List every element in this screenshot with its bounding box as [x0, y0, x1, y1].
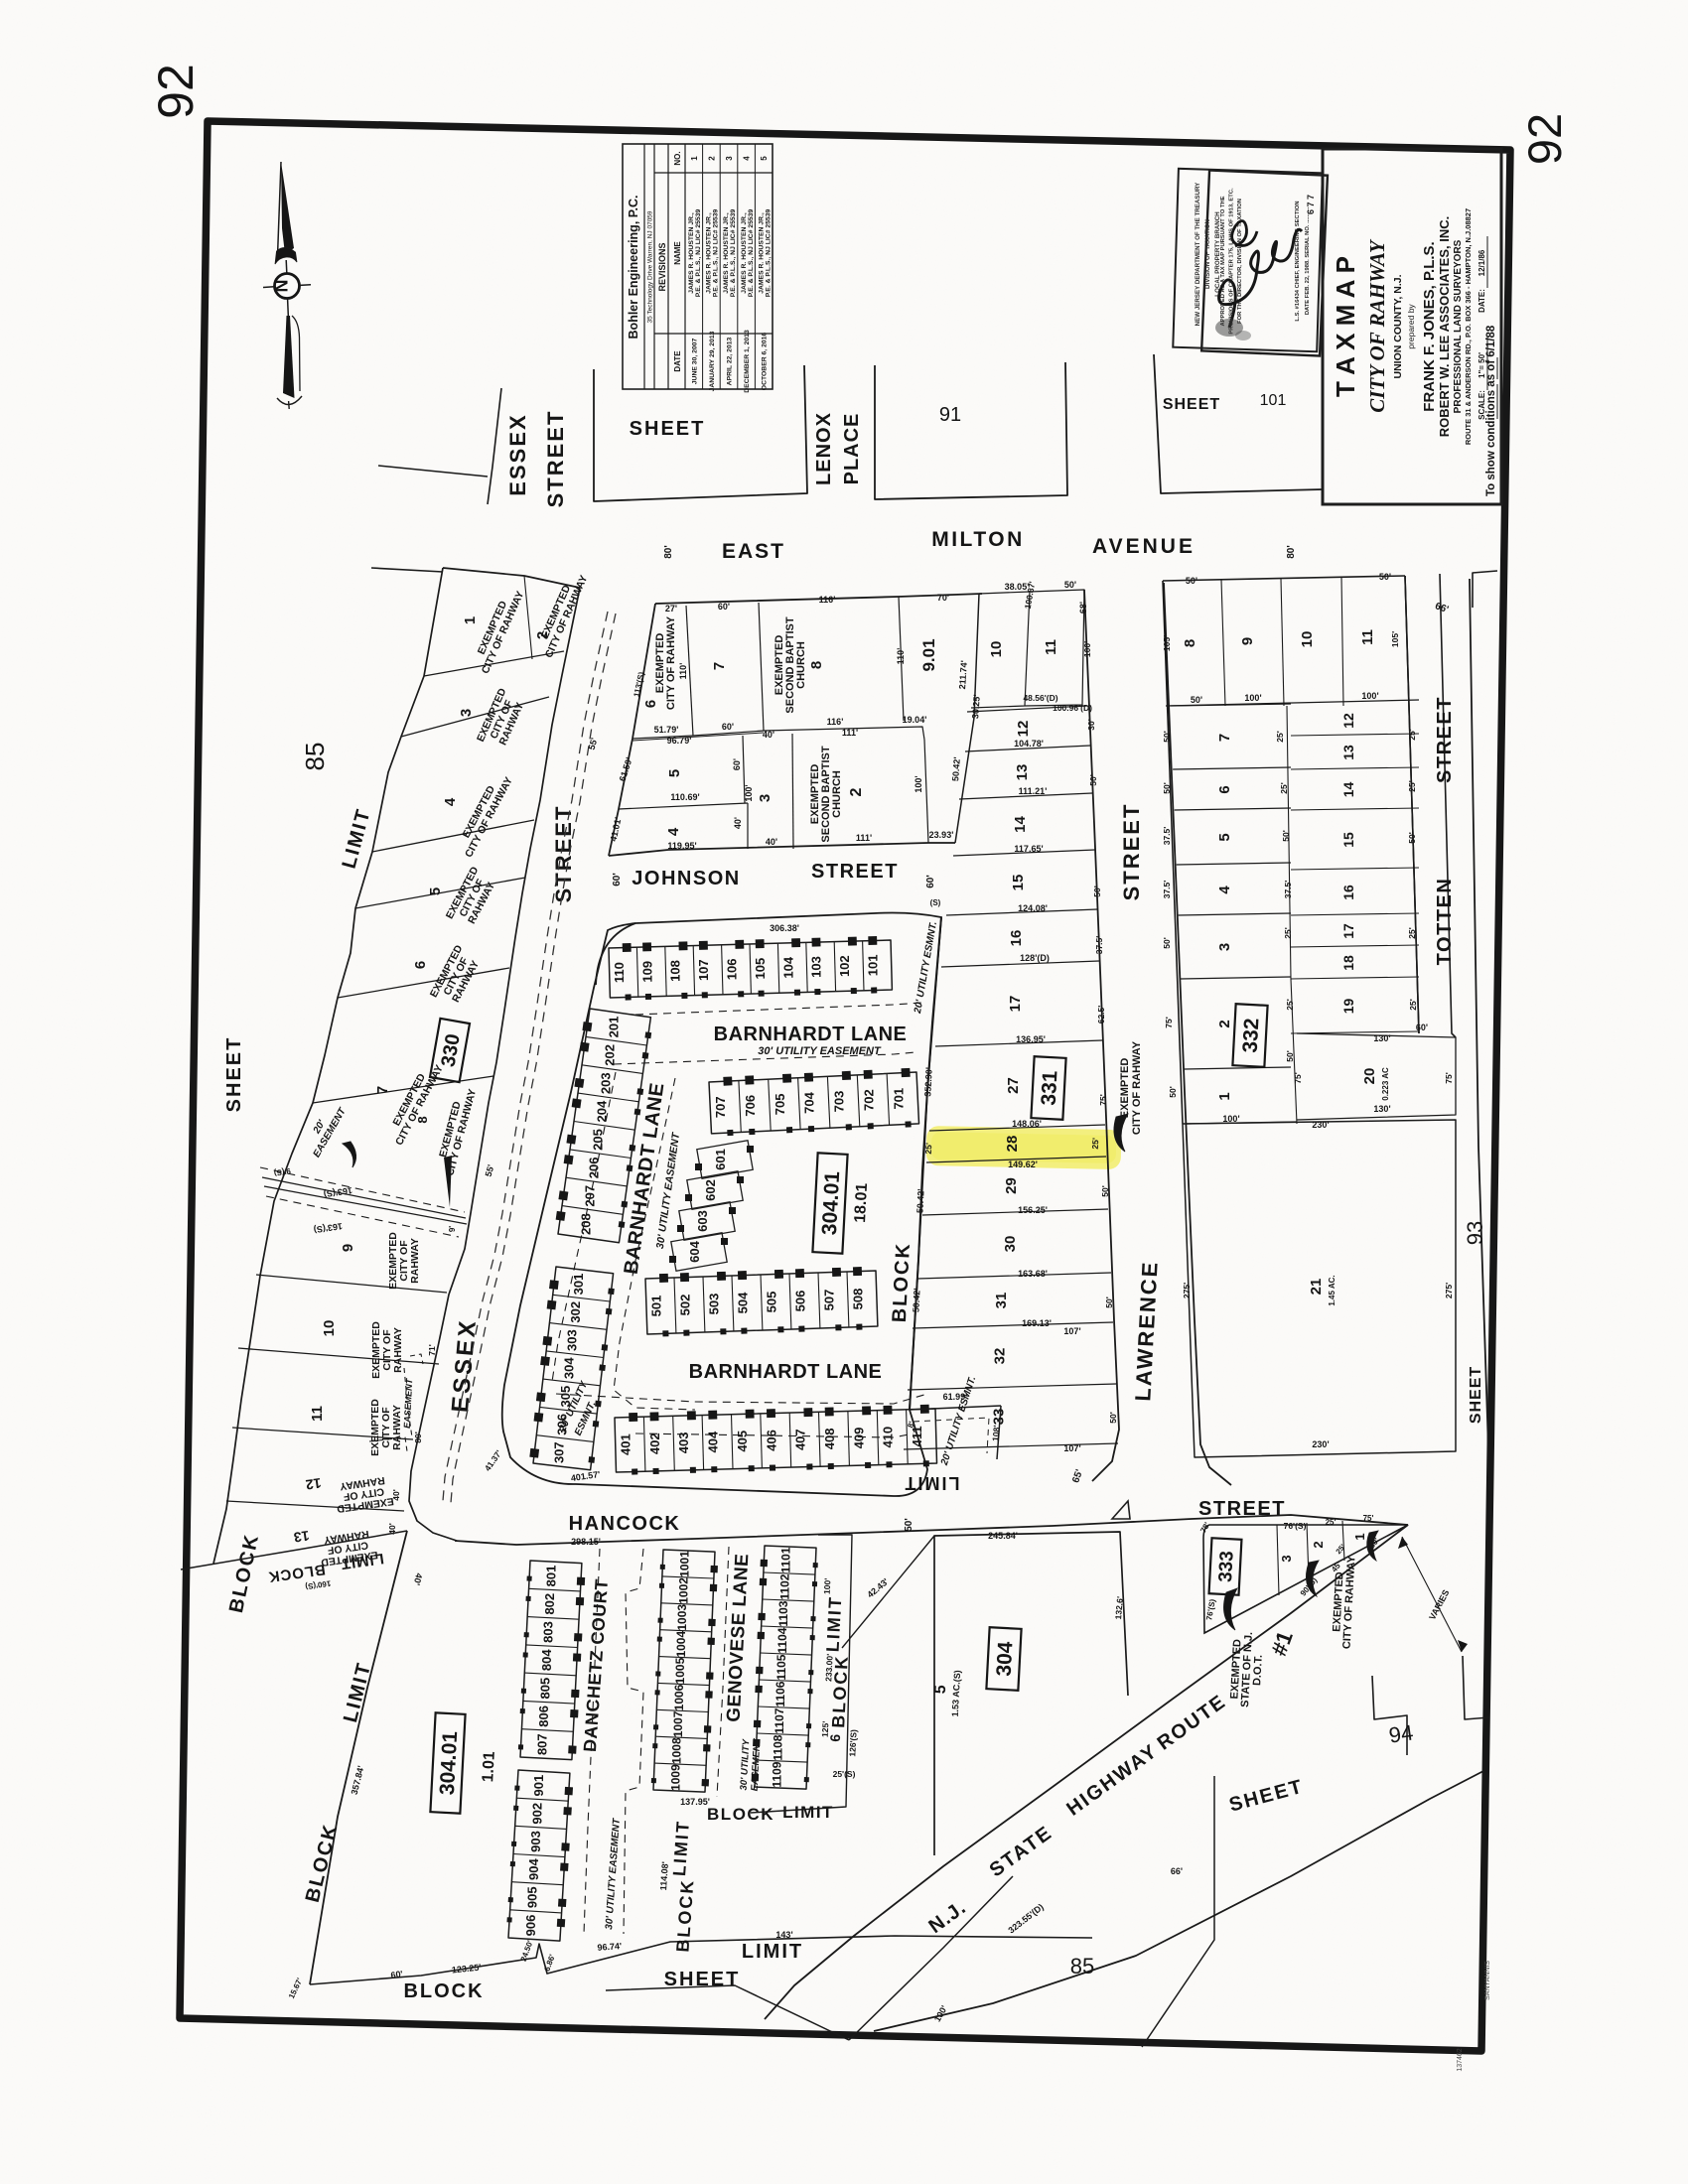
- svg-text:704: 704: [802, 1091, 817, 1113]
- svg-text:0.223 AC: 0.223 AC: [1381, 1067, 1390, 1101]
- svg-text:LENOX: LENOX: [813, 412, 835, 485]
- svg-text:50': 50': [904, 1518, 914, 1532]
- svg-text:603: 603: [695, 1210, 710, 1232]
- svg-text:1108: 1108: [772, 1734, 785, 1760]
- svg-text:410: 410: [881, 1427, 896, 1448]
- svg-text:15: 15: [1010, 875, 1027, 891]
- svg-text:75': 75': [1444, 1072, 1454, 1083]
- svg-text:CITY OF RAHWAY: CITY OF RAHWAY: [1365, 238, 1389, 413]
- svg-text:100': 100': [822, 1577, 833, 1594]
- svg-text:71': 71': [427, 1344, 437, 1355]
- svg-text:10: 10: [1299, 631, 1316, 648]
- svg-text:404: 404: [706, 1431, 721, 1452]
- svg-text:50': 50': [1379, 572, 1391, 582]
- svg-text:233.00': 233.00': [823, 1654, 834, 1683]
- svg-text:333: 333: [1215, 1551, 1238, 1583]
- svg-text:6: 6: [412, 961, 429, 969]
- svg-text:12: 12: [305, 1475, 323, 1493]
- svg-text:RAHWAY: RAHWAY: [392, 1327, 404, 1373]
- svg-text:P.E. & P.L.S., NJ LIC# 25539: P.E. & P.L.S., NJ LIC# 25539: [730, 209, 737, 298]
- svg-text:202: 202: [603, 1044, 618, 1066]
- svg-text:1103: 1103: [776, 1600, 790, 1626]
- svg-text:11: 11: [1359, 629, 1376, 645]
- svg-text:1: 1: [1216, 1092, 1233, 1100]
- svg-text:SHEET: SHEET: [223, 1036, 245, 1113]
- svg-text:2: 2: [707, 156, 716, 161]
- svg-text:505: 505: [765, 1292, 779, 1313]
- svg-text:25': 25': [1407, 729, 1417, 740]
- svg-text:2: 2: [1216, 1020, 1233, 1027]
- svg-text:48.56'(D): 48.56'(D): [1023, 693, 1057, 703]
- svg-text:408: 408: [822, 1429, 837, 1450]
- svg-text:50': 50': [1285, 1050, 1295, 1061]
- svg-text:100': 100': [1361, 691, 1378, 701]
- svg-text:ROUTE 31 & ANDERSON RD., P.O.: ROUTE 31 & ANDERSON RD., P.O. BOX 366 - …: [1464, 208, 1473, 445]
- svg-text:37.5': 37.5': [1283, 881, 1293, 899]
- svg-text:203: 203: [599, 1072, 614, 1094]
- svg-text:51.79': 51.79': [654, 725, 679, 735]
- svg-text:107': 107': [1063, 1443, 1080, 1453]
- svg-text:701: 701: [891, 1088, 906, 1110]
- svg-text:DECEMBER 1, 2013: DECEMBER 1, 2013: [744, 330, 751, 393]
- svg-text:60': 60': [732, 758, 742, 770]
- svg-text:LIMIT: LIMIT: [669, 1819, 693, 1876]
- svg-text:STREET: STREET: [811, 861, 899, 883]
- svg-text:50': 50': [1162, 731, 1172, 742]
- svg-text:143': 143': [775, 1930, 792, 1940]
- svg-text:163.68': 163.68': [1018, 1269, 1048, 1279]
- svg-text:5: 5: [666, 769, 683, 777]
- svg-text:50': 50': [1162, 782, 1172, 793]
- svg-text:BLOCK: BLOCK: [403, 1980, 484, 2002]
- svg-text:14: 14: [1012, 816, 1029, 833]
- svg-text:304: 304: [993, 1641, 1018, 1678]
- svg-text:1: 1: [690, 156, 699, 161]
- svg-text:101: 101: [866, 955, 881, 977]
- svg-text:1.45 AC.: 1.45 AC.: [1328, 1275, 1336, 1305]
- svg-text:805: 805: [538, 1678, 553, 1700]
- svg-text:93: 93: [1463, 1221, 1487, 1245]
- svg-text:604: 604: [687, 1240, 702, 1262]
- svg-text:60': 60': [390, 1969, 403, 1980]
- svg-text:101: 101: [1260, 392, 1287, 409]
- svg-text:25': 25': [1326, 1518, 1336, 1527]
- svg-text:1.01: 1.01: [480, 1751, 498, 1783]
- svg-text:BLOCK: BLOCK: [889, 1242, 914, 1323]
- svg-text:92: 92: [1518, 113, 1571, 165]
- svg-text:126'(S): 126'(S): [847, 1729, 858, 1757]
- svg-text:21: 21: [1308, 1279, 1325, 1296]
- svg-text:25': 25': [1090, 1138, 1101, 1150]
- svg-text:SHEET: SHEET: [630, 418, 706, 440]
- svg-text:130': 130': [1373, 1104, 1390, 1114]
- svg-text:125': 125': [820, 1720, 831, 1737]
- svg-text:ESSEX: ESSEX: [505, 413, 530, 495]
- svg-text:25': 25': [1408, 999, 1418, 1010]
- svg-text:EAST: EAST: [722, 540, 785, 563]
- svg-text:50': 50': [1168, 1086, 1178, 1097]
- svg-text:705: 705: [773, 1094, 787, 1116]
- svg-text:405: 405: [735, 1431, 750, 1452]
- svg-text:304: 304: [561, 1357, 576, 1379]
- svg-text:801: 801: [543, 1566, 558, 1587]
- svg-text:(S): (S): [930, 898, 941, 907]
- svg-text:85: 85: [300, 743, 330, 771]
- svg-text:76'(S): 76'(S): [1284, 1521, 1307, 1531]
- svg-text:40': 40': [766, 837, 777, 847]
- svg-text:P.E. & P.L.S., NJ LIC# 25539: P.E. & P.L.S., NJ LIC# 25539: [695, 209, 702, 298]
- svg-text:506: 506: [793, 1291, 808, 1312]
- svg-text:401: 401: [618, 1433, 633, 1455]
- svg-text:Bohler Engineering, P.C.: Bohler Engineering, P.C.: [627, 196, 640, 340]
- svg-text:LIMIT: LIMIT: [904, 1473, 960, 1493]
- svg-text:407: 407: [793, 1429, 808, 1450]
- svg-text:102: 102: [837, 955, 852, 977]
- svg-text:27': 27': [665, 604, 677, 614]
- svg-text:107': 107': [1063, 1326, 1080, 1336]
- svg-text:1003: 1003: [675, 1604, 689, 1631]
- svg-text:4: 4: [743, 156, 752, 161]
- svg-text:RAHWAY: RAHWAY: [409, 1238, 421, 1284]
- svg-text:37.5': 37.5': [1162, 827, 1172, 846]
- svg-text:75': 75': [1293, 1072, 1303, 1083]
- svg-text:5: 5: [932, 1685, 949, 1695]
- svg-text:302: 302: [568, 1301, 583, 1323]
- svg-text:30: 30: [1002, 1236, 1019, 1253]
- svg-text:3: 3: [1216, 943, 1233, 951]
- svg-text:UNION COUNTY, N.J.: UNION COUNTY, N.J.: [1392, 274, 1404, 378]
- svg-text:19: 19: [1340, 999, 1356, 1015]
- svg-text:275': 275': [1444, 1283, 1454, 1298]
- svg-text:50.42': 50.42': [950, 756, 962, 781]
- svg-text:80': 80': [663, 545, 674, 559]
- svg-text:50': 50': [1407, 832, 1417, 843]
- svg-text:501: 501: [649, 1296, 664, 1317]
- svg-text:108': 108': [990, 1425, 1001, 1441]
- svg-text:298.15': 298.15': [571, 1537, 601, 1547]
- svg-text:17: 17: [1340, 923, 1356, 939]
- svg-text:137462: 137462: [1457, 2048, 1464, 2071]
- svg-text:HANCOCK: HANCOCK: [569, 1513, 681, 1535]
- svg-text:6: 6: [1216, 785, 1233, 793]
- svg-text:802: 802: [542, 1593, 557, 1615]
- svg-text:204: 204: [595, 1100, 610, 1122]
- svg-text:29: 29: [1003, 1177, 1020, 1194]
- svg-text:8: 8: [808, 661, 825, 669]
- svg-text:60': 60': [1416, 1023, 1428, 1032]
- svg-text:PROFESSIONAL LAND SURVEYOR: PROFESSIONAL LAND SURVEYORS: [1453, 239, 1464, 413]
- svg-text:2: 2: [1311, 1541, 1326, 1548]
- svg-text:1107: 1107: [773, 1707, 786, 1733]
- svg-text:SANYANNIS: SANYANNIS: [1484, 1961, 1491, 2000]
- svg-text:STREET: STREET: [543, 410, 568, 508]
- svg-text:25'(S): 25'(S): [833, 1769, 856, 1779]
- svg-text:117.65': 117.65': [1014, 844, 1043, 854]
- svg-text:116': 116': [827, 717, 844, 727]
- svg-text:8: 8: [1182, 639, 1198, 647]
- svg-text:9': 9': [448, 1226, 457, 1232]
- svg-text:807: 807: [535, 1733, 550, 1755]
- svg-text:FOR THE DIRECTOR, DIVISION OF: FOR THE DIRECTOR, DIVISION OF TAXATION: [1237, 199, 1243, 324]
- svg-text:JAMES R. HOUSTEN JR.,: JAMES R. HOUSTEN JR.,: [706, 212, 713, 294]
- svg-text:105': 105': [1390, 631, 1400, 647]
- svg-text:40': 40': [763, 730, 774, 740]
- svg-text:208: 208: [579, 1213, 594, 1235]
- svg-text:JAMES R. HOUSTEN JR.,: JAMES R. HOUSTEN JR.,: [688, 212, 695, 294]
- svg-text:68': 68': [1078, 602, 1088, 614]
- svg-text:906: 906: [523, 1915, 538, 1937]
- svg-text:50': 50': [1162, 937, 1172, 948]
- svg-text:3: 3: [458, 709, 475, 717]
- svg-text:303: 303: [565, 1329, 580, 1351]
- svg-text:100': 100': [1222, 1114, 1239, 1124]
- svg-text:FRANK F. JONES, P.L.S.: FRANK F. JONES, P.L.S.: [1421, 241, 1438, 411]
- svg-text:75': 75': [1098, 1094, 1108, 1105]
- svg-text:50': 50': [1281, 830, 1291, 841]
- svg-text:156.25': 156.25': [1018, 1205, 1048, 1215]
- svg-text:DATE FEB. 22, 1988. SERIAL N: DATE FEB. 22, 1988. SERIAL NO. .........…: [1305, 206, 1311, 315]
- svg-text:JOHNSON: JOHNSON: [632, 868, 740, 889]
- svg-text:CHURCH: CHURCH: [831, 770, 843, 818]
- svg-text:304.01: 304.01: [436, 1730, 462, 1796]
- svg-text:6 7 7: 6 7 7: [1306, 195, 1316, 214]
- svg-text:1101: 1101: [778, 1547, 792, 1572]
- svg-text:TOTTEN: TOTTEN: [1434, 878, 1456, 966]
- svg-text:206: 206: [587, 1158, 602, 1179]
- svg-text:32: 32: [992, 1348, 1009, 1365]
- svg-text:602: 602: [703, 1179, 718, 1201]
- svg-text:CITY OF RAHWAY: CITY OF RAHWAY: [1131, 1040, 1143, 1135]
- svg-text:12: 12: [1015, 721, 1032, 738]
- svg-text:3: 3: [725, 156, 734, 161]
- svg-text:124.08': 124.08': [1018, 903, 1048, 913]
- svg-text:96.79': 96.79': [667, 736, 692, 746]
- svg-text:4: 4: [1216, 886, 1233, 894]
- svg-text:148.06': 148.06': [1012, 1119, 1042, 1129]
- svg-text:14: 14: [1340, 782, 1356, 798]
- svg-text:92: 92: [148, 64, 204, 119]
- svg-text:50': 50': [1108, 1412, 1118, 1423]
- svg-text:85: 85: [1070, 1954, 1094, 1979]
- svg-text:25': 25': [1275, 731, 1285, 742]
- svg-text:902: 902: [530, 1803, 545, 1825]
- svg-text:7: 7: [1216, 734, 1233, 742]
- svg-text:11: 11: [1043, 639, 1059, 655]
- svg-text:306.38': 306.38': [770, 923, 799, 933]
- svg-text:11: 11: [309, 1406, 326, 1422]
- svg-text:JAMES R. HOUSTEN JR.,: JAMES R. HOUSTEN JR.,: [741, 212, 748, 294]
- svg-text:10: 10: [988, 641, 1005, 658]
- svg-text:331: 331: [1038, 1070, 1062, 1107]
- svg-text:15: 15: [1340, 832, 1356, 848]
- svg-text:JANUARY 29, 2013: JANUARY 29, 2013: [709, 331, 716, 391]
- svg-text:6: 6: [642, 700, 659, 708]
- svg-text:601: 601: [713, 1149, 728, 1170]
- svg-text:104.78': 104.78': [1014, 739, 1044, 749]
- svg-text:110': 110': [678, 663, 688, 680]
- svg-text:DATE: DATE: [673, 350, 682, 372]
- svg-text:2: 2: [848, 787, 865, 796]
- svg-text:508: 508: [851, 1289, 866, 1310]
- svg-text:JUNE 30, 2007: JUNE 30, 2007: [691, 339, 698, 385]
- svg-text:903: 903: [528, 1831, 543, 1852]
- svg-text:230': 230': [1312, 1439, 1329, 1449]
- svg-text:DIVISION OF TAXATION: DIVISION OF TAXATION: [1204, 219, 1211, 289]
- svg-text:SHEET: SHEET: [1163, 396, 1220, 413]
- svg-text:116': 116': [819, 595, 836, 605]
- svg-text:905: 905: [525, 1886, 540, 1908]
- svg-text:23.93': 23.93': [929, 830, 954, 840]
- svg-text:60': 60': [718, 602, 730, 612]
- svg-text:STREET: STREET: [1198, 1498, 1286, 1520]
- svg-text:70': 70': [937, 593, 949, 603]
- svg-text:P.E. & P.L.S., NJ LIC# 25539: P.E. & P.L.S., NJ LIC# 25539: [713, 209, 720, 298]
- svg-text:25': 25': [1279, 782, 1289, 793]
- svg-text:3: 3: [757, 794, 774, 802]
- svg-text:80': 80': [1286, 545, 1297, 559]
- svg-text:BLOCK: BLOCK: [707, 1805, 774, 1824]
- svg-text:18: 18: [1340, 955, 1356, 971]
- svg-text:1001: 1001: [677, 1551, 691, 1577]
- svg-text:To show conditions as of 6/1/: To show conditions as of 6/1/88: [1485, 325, 1497, 496]
- svg-text:100': 100': [744, 784, 754, 801]
- svg-text:211.74': 211.74': [957, 660, 969, 690]
- svg-text:403: 403: [676, 1433, 691, 1454]
- svg-text:75': 75': [1164, 1017, 1174, 1027]
- svg-text:111.21': 111.21': [1019, 786, 1048, 796]
- svg-text:803: 803: [540, 1621, 555, 1643]
- svg-text:BARNHARDT LANE: BARNHARDT LANE: [714, 1024, 908, 1045]
- svg-text:50': 50': [1186, 576, 1197, 586]
- svg-text:169.13': 169.13': [1022, 1318, 1052, 1328]
- svg-text:307: 307: [551, 1441, 566, 1463]
- svg-text:3: 3: [1279, 1555, 1294, 1562]
- svg-text:9.01: 9.01: [919, 638, 938, 671]
- svg-text:REVISIONS: REVISIONS: [657, 242, 667, 291]
- svg-text:1006: 1006: [672, 1684, 686, 1710]
- svg-text:502: 502: [678, 1295, 693, 1316]
- svg-text:40': 40': [391, 1489, 401, 1500]
- svg-text:105': 105': [1162, 635, 1172, 651]
- svg-text:18.01: 18.01: [852, 1182, 871, 1223]
- svg-text:149.62': 149.62': [1008, 1160, 1038, 1169]
- svg-text:1005: 1005: [673, 1657, 687, 1684]
- svg-text:304.01: 304.01: [818, 1170, 844, 1236]
- svg-text:L.S. #16434 CHIEF, EN: L.S. #16434 CHIEF, ENGINEERING SECTION: [1295, 201, 1301, 321]
- svg-text:105: 105: [753, 958, 768, 980]
- svg-text:4: 4: [665, 827, 682, 836]
- svg-text:7: 7: [374, 1086, 391, 1094]
- svg-text:16: 16: [1008, 930, 1025, 947]
- svg-text:507: 507: [822, 1290, 837, 1311]
- svg-text:106: 106: [725, 959, 740, 981]
- svg-text:301: 301: [571, 1274, 586, 1296]
- svg-text:30' UTILITY EASEMENT: 30' UTILITY EASEMENT: [758, 1045, 882, 1057]
- svg-text:66': 66': [1171, 1866, 1183, 1876]
- svg-text:LIMIT: LIMIT: [823, 1595, 846, 1653]
- svg-text:110': 110': [896, 648, 906, 665]
- svg-text:75': 75': [1363, 1514, 1374, 1523]
- svg-text:35 Technology Drive Warren, N: 35 Technology Drive Warren, NJ 07059: [647, 210, 654, 323]
- svg-text:100': 100': [914, 775, 923, 792]
- svg-text:25': 25': [1283, 927, 1293, 938]
- svg-text:37.5': 37.5': [1162, 881, 1172, 899]
- svg-text:103: 103: [809, 956, 824, 978]
- svg-text:PLACE: PLACE: [841, 413, 863, 485]
- svg-text:12: 12: [1340, 713, 1356, 729]
- svg-text:702: 702: [862, 1089, 877, 1111]
- svg-text:JAMES R. HOUSTEN JR.,: JAMES R. HOUSTEN JR.,: [758, 212, 765, 294]
- svg-text:30': 30': [1086, 719, 1096, 730]
- svg-text:prepared by: prepared by: [1406, 304, 1416, 349]
- svg-text:P.E. & P.L.S., NJ LIC# 25539: P.E. & P.L.S., NJ LIC# 25539: [748, 209, 755, 298]
- svg-text:NEW JERSEY DEPARTMENT OF THE T: NEW JERSEY DEPARTMENT OF THE TREASURY: [1195, 182, 1201, 326]
- svg-text:P.E. & P.L.S., NJ LIC# 25539: P.E. & P.L.S., NJ LIC# 25539: [765, 209, 772, 298]
- svg-text:1007: 1007: [671, 1710, 685, 1737]
- svg-text:CHURCH: CHURCH: [795, 641, 807, 689]
- svg-text:504: 504: [736, 1292, 751, 1313]
- svg-text:406: 406: [764, 1430, 778, 1451]
- svg-text:STREET: STREET: [1434, 696, 1456, 783]
- svg-text:13: 13: [1340, 745, 1356, 760]
- svg-text:LIMIT: LIMIT: [742, 1941, 803, 1963]
- svg-text:137.95': 137.95': [680, 1797, 710, 1807]
- svg-text:T A X M A P: T A X M A P: [1331, 256, 1360, 397]
- svg-text:NO.: NO.: [673, 151, 682, 165]
- svg-text:111': 111': [842, 728, 858, 738]
- svg-text:110.69': 110.69': [670, 792, 699, 802]
- svg-text:706: 706: [743, 1095, 758, 1117]
- svg-text:109: 109: [639, 961, 654, 983]
- svg-text:CITY OF RAHWAY: CITY OF RAHWAY: [665, 615, 677, 710]
- svg-text:402: 402: [647, 1433, 662, 1454]
- svg-text:JAMES R. HOUSTEN JR.,: JAMES R. HOUSTEN JR.,: [723, 212, 730, 294]
- svg-text:28: 28: [1004, 1136, 1021, 1153]
- svg-text:EXEMPTED: EXEMPTED: [1119, 1058, 1131, 1119]
- svg-text:13: 13: [293, 1528, 311, 1546]
- svg-text:136.95': 136.95': [1016, 1034, 1046, 1044]
- svg-text:703: 703: [832, 1091, 847, 1113]
- svg-text:104: 104: [780, 956, 795, 978]
- svg-text:1002: 1002: [676, 1577, 690, 1604]
- svg-text:100.96'(D): 100.96'(D): [1053, 703, 1092, 713]
- svg-text:130': 130': [1373, 1033, 1390, 1043]
- svg-text:7: 7: [711, 662, 728, 670]
- svg-text:245.84': 245.84': [988, 1531, 1018, 1541]
- svg-text:12/1/86: 12/1/86: [1477, 249, 1486, 276]
- svg-text:111': 111': [856, 833, 872, 843]
- svg-text:1104: 1104: [775, 1627, 789, 1653]
- svg-text:40': 40': [733, 817, 743, 829]
- svg-text:61.99': 61.99': [943, 1392, 968, 1402]
- svg-text:904: 904: [526, 1857, 541, 1879]
- svg-text:94: 94: [1387, 1719, 1415, 1747]
- svg-text:804: 804: [539, 1649, 554, 1671]
- svg-text:901: 901: [531, 1775, 546, 1797]
- svg-text:SHEET: SHEET: [1468, 1366, 1484, 1424]
- svg-text:1109: 1109: [771, 1761, 784, 1787]
- svg-text:1: 1: [462, 616, 479, 624]
- svg-text:1: 1: [1352, 1533, 1367, 1540]
- svg-text:806: 806: [536, 1706, 551, 1727]
- svg-text:NAME: NAME: [673, 241, 682, 265]
- svg-text:27: 27: [1005, 1077, 1022, 1094]
- svg-text:114.08': 114.08': [658, 1861, 670, 1891]
- svg-text:332: 332: [1239, 1018, 1264, 1053]
- svg-text:APPROVED AS A TAX MAP PURSUANT: APPROVED AS A TAX MAP PURSUANT TO THE: [1220, 196, 1226, 326]
- svg-text:230': 230': [1312, 1120, 1329, 1130]
- svg-text:707: 707: [713, 1096, 728, 1118]
